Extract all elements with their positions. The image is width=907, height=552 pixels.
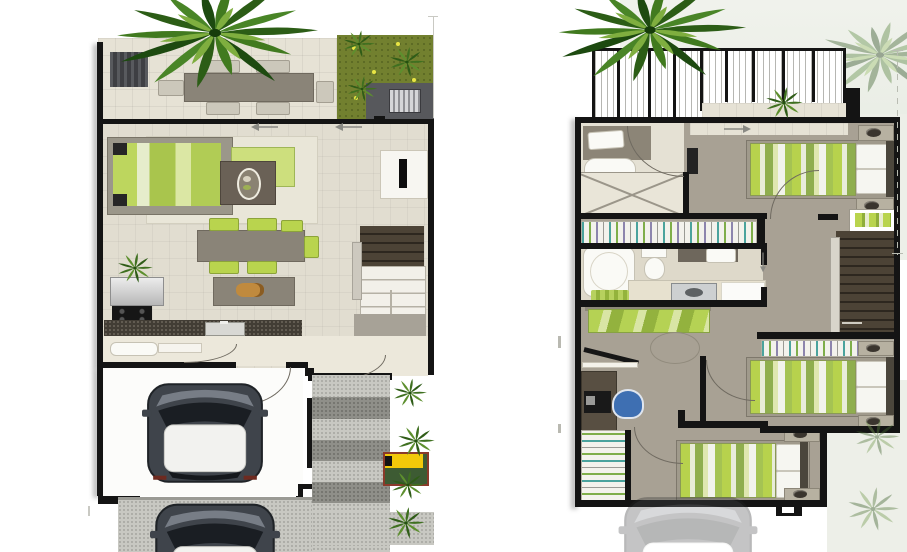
entry-strip — [690, 123, 848, 135]
lounge-sofa-seat — [588, 309, 710, 333]
vanity-sink — [706, 248, 736, 263]
counter-panel — [721, 282, 765, 302]
dimension-tick — [892, 50, 903, 51]
headboard — [886, 140, 894, 197]
stairs-upper-floor — [836, 231, 894, 334]
desk-keyboard — [586, 396, 595, 405]
palm-tree-icon — [545, 0, 755, 100]
dimension-line — [897, 50, 898, 255]
wall-shelf — [582, 362, 638, 368]
toilet-bowl — [644, 257, 665, 280]
wall — [820, 428, 827, 507]
desk-chair — [612, 389, 644, 419]
headboard — [886, 357, 894, 415]
pergola-mullion — [812, 51, 815, 102]
pillow — [856, 169, 888, 194]
stairs-rail — [830, 237, 840, 333]
wall — [678, 410, 685, 428]
plan-upper-floor — [0, 0, 907, 552]
ghost-car-icon — [612, 496, 764, 552]
wall — [577, 213, 767, 219]
wall — [575, 117, 581, 507]
wall — [625, 430, 631, 501]
lamp — [866, 344, 880, 352]
wall — [678, 421, 768, 428]
dimension-tick — [892, 253, 903, 254]
dimension-tick — [558, 424, 561, 433]
bench-cushion — [855, 213, 891, 227]
shower — [581, 172, 684, 217]
wall-mirror — [687, 148, 698, 174]
bench — [849, 209, 897, 233]
wall — [757, 332, 900, 339]
ensuite-sink — [587, 130, 624, 150]
dimension-tick — [558, 336, 561, 348]
floor-sketch-circle — [650, 332, 700, 364]
pillow — [856, 387, 888, 413]
linen-wardrobe — [581, 430, 627, 503]
steel-sink — [671, 283, 717, 301]
threshold-inset — [782, 507, 794, 513]
stairs-return-line — [842, 322, 862, 324]
pillow — [856, 144, 888, 169]
pillow — [856, 361, 888, 387]
wall — [757, 213, 765, 247]
floor-plan-image — [0, 0, 907, 552]
lamp — [793, 490, 807, 498]
lamp — [866, 128, 881, 137]
wall — [577, 243, 765, 249]
wall — [818, 214, 838, 220]
ghost-shrub-icon — [835, 480, 907, 538]
bathtub-basin — [590, 252, 628, 291]
wall — [575, 117, 900, 123]
wall — [700, 356, 706, 428]
sink-basin — [685, 288, 703, 297]
entry-arrow-right-icon — [722, 124, 752, 134]
wall — [577, 300, 767, 307]
bedroom3-bed-duvet — [680, 443, 776, 498]
wall — [683, 172, 689, 216]
bath-arrow-down-icon — [759, 251, 767, 273]
master-wardrobe — [581, 221, 757, 245]
balcony-plant-icon — [756, 82, 812, 124]
bedroom2-bed-duvet — [750, 360, 856, 414]
ghost-shrub-icon — [845, 412, 907, 462]
